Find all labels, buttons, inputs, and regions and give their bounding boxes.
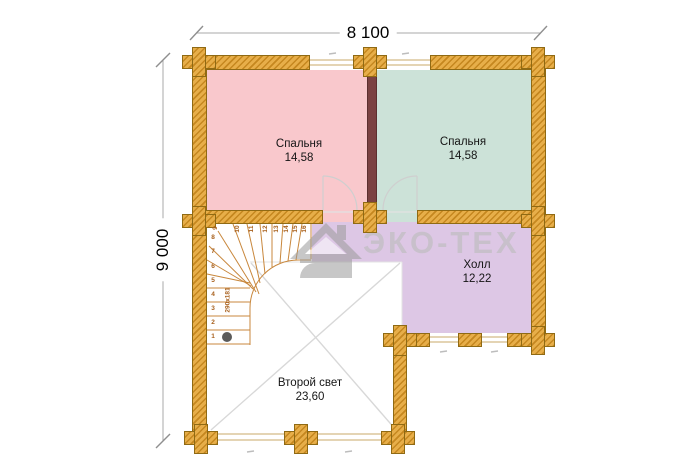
step-number-4: 4 bbox=[211, 292, 215, 299]
wall-right bbox=[531, 55, 546, 347]
step-number-12: 12 bbox=[263, 225, 270, 232]
room-area: 23,60 bbox=[278, 391, 342, 405]
room-name: Второй свет bbox=[278, 377, 342, 391]
floor-plan-canvas: ЭКО-ТЕХ Спальня 14,58 Спальня 14,58 Холл… bbox=[0, 0, 700, 472]
room-name: Спальня bbox=[276, 138, 322, 152]
dimension-left-label: 9 000 bbox=[153, 219, 173, 282]
room-area: 14,58 bbox=[440, 150, 486, 164]
wall-hall-bottom-2 bbox=[458, 333, 482, 347]
post-top-left-v bbox=[192, 47, 206, 77]
step-number-10: 10 bbox=[235, 225, 242, 232]
post-top-right-v bbox=[531, 47, 545, 77]
post-mid-right-v bbox=[531, 206, 545, 236]
room-area: 14,58 bbox=[276, 152, 322, 166]
dimension-top-label: 8 100 bbox=[340, 23, 397, 43]
stairs-start-dot bbox=[222, 332, 232, 342]
post-bottom-right-v bbox=[391, 424, 405, 454]
post-mid-center-v bbox=[363, 202, 377, 233]
watermark-text: ЭКО-ТЕХ bbox=[363, 225, 520, 261]
step-number-16: 16 bbox=[302, 225, 309, 232]
door-arc-bedroom-left bbox=[323, 176, 358, 212]
label-bedroom-right: Спальня 14,58 bbox=[440, 136, 486, 164]
step-number-3: 3 bbox=[211, 306, 215, 313]
door-arc-bedroom-right bbox=[382, 176, 417, 212]
house-logo bbox=[288, 218, 364, 282]
room-name: Холл bbox=[463, 259, 492, 273]
step-number-2: 2 bbox=[211, 320, 215, 327]
step-number-8: 8 bbox=[211, 235, 215, 242]
post-hall-right-v bbox=[531, 326, 545, 355]
step-number-6: 6 bbox=[211, 264, 215, 271]
post-top-center-v bbox=[363, 47, 377, 77]
step-number-15: 15 bbox=[293, 225, 300, 232]
room-name: Спальня bbox=[440, 136, 486, 150]
wall-partition-bedrooms bbox=[367, 70, 377, 211]
step-number-9: 9 bbox=[213, 226, 220, 230]
room-area: 12,22 bbox=[463, 273, 492, 287]
post-hall-left-v bbox=[393, 325, 407, 356]
label-bedroom-left: Спальня 14,58 bbox=[276, 138, 322, 166]
post-mid-left-v bbox=[192, 206, 206, 236]
stairs-flight-size: 290х181 bbox=[225, 287, 232, 312]
label-hall: Холл 12,22 bbox=[463, 259, 492, 287]
post-bottom-center-v bbox=[294, 424, 308, 454]
step-number-7: 7 bbox=[211, 249, 215, 256]
step-number-5: 5 bbox=[211, 278, 215, 285]
step-number-13: 13 bbox=[274, 225, 281, 232]
step-number-1: 1 bbox=[211, 334, 215, 341]
post-bottom-left-v bbox=[194, 424, 208, 454]
step-number-11: 11 bbox=[249, 226, 256, 233]
label-void: Второй свет 23,60 bbox=[278, 377, 342, 405]
step-number-14: 14 bbox=[284, 225, 291, 232]
wall-left bbox=[192, 55, 207, 445]
